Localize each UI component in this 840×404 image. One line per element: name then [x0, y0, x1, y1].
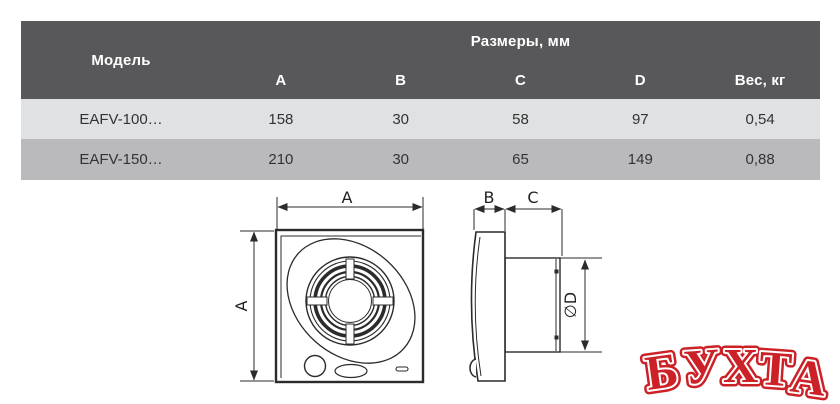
- dim-label-duct-depth: C: [527, 188, 538, 207]
- side-switch-bump: [470, 359, 476, 377]
- fan-front-view: [240, 197, 440, 389]
- watermark-logo: БУХТА БУХТА БУХТА: [642, 338, 831, 404]
- technical-drawing: A A B C ∅D БУХТА БУХТА БУХТА: [0, 0, 840, 404]
- watermark-text: БУХТА: [642, 338, 831, 404]
- dim-label-duct-diameter: ∅D: [561, 292, 580, 318]
- dim-label-front-width: A: [342, 188, 353, 207]
- dim-label-front-height: A: [232, 300, 251, 311]
- dim-label-panel-depth: B: [484, 188, 495, 207]
- fan-side-view: [470, 209, 602, 381]
- spec-sheet-page: { "table": { "header": { "model": "Модел…: [0, 0, 840, 404]
- front-indicator-slot: [396, 367, 408, 371]
